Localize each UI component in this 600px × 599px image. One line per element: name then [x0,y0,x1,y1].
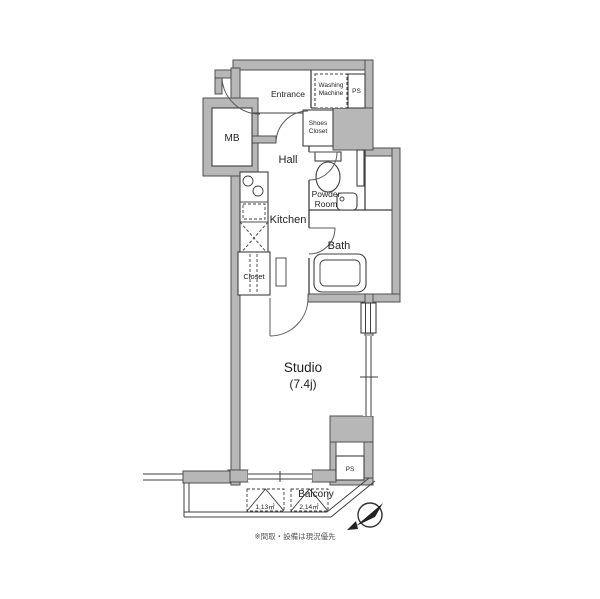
wall-balcony-divider-stub [183,471,230,483]
shoes-closet-label-2: Closet [309,128,328,135]
toilet-bowl [316,162,340,192]
studio-door-arc [270,298,308,336]
shoes-closet-label-1: Shoes [309,120,328,127]
balcony-label: Balcony [298,489,334,500]
closet-door-pocket [276,258,286,286]
windows [248,303,378,482]
closet-label: Closet [243,272,265,281]
window-right-upper [361,303,376,333]
disclaimer-note: ※間取・設備は現況優先 [254,531,336,541]
wall-bottom-left-post [228,470,248,482]
floorplan-svg: Entrance Washing Machine PS Shoes Closet… [0,0,600,599]
powder-room-label-1: Powder [312,189,341,199]
ps-bottom-label: PS [346,466,355,473]
window-right-lower-gap [363,336,374,416]
kitchen-label: Kitchen [270,214,307,226]
washing-machine-label-2: Machine [319,90,344,97]
mb-label: MB [225,133,240,144]
wall-top [233,60,373,70]
studio-size-label: (7.4j) [289,377,316,391]
wall-br-block [330,416,373,442]
ps-top-label: PS [352,88,361,95]
wall-right-mid [392,148,400,302]
balcony-left-extension-lines [143,474,183,480]
balcony-unit-2-label: 2,14㎡ [299,502,319,511]
studio-label: Studio [284,360,322,375]
powder-room-label-2: Room [315,199,338,209]
bath-label: Bath [328,240,351,252]
duct-box [357,150,364,186]
wall-bath-bottom [308,294,370,302]
compass-arrow-tip [347,521,358,530]
compass-icon [347,503,383,530]
hall-label: Hall [279,154,298,166]
balcony-bottom-edge [184,512,331,517]
wall-top-left-stub [215,78,222,94]
floorplan-page: Entrance Washing Machine PS Shoes Closet… [0,0,600,599]
balcony-unit-1-label: 1,13㎡ [255,502,275,511]
washing-machine-label-1: Washing [318,82,343,89]
wall-bottom-right-post [312,470,336,482]
wall-shaft-block [333,108,373,150]
entrance-label: Entrance [271,89,305,99]
